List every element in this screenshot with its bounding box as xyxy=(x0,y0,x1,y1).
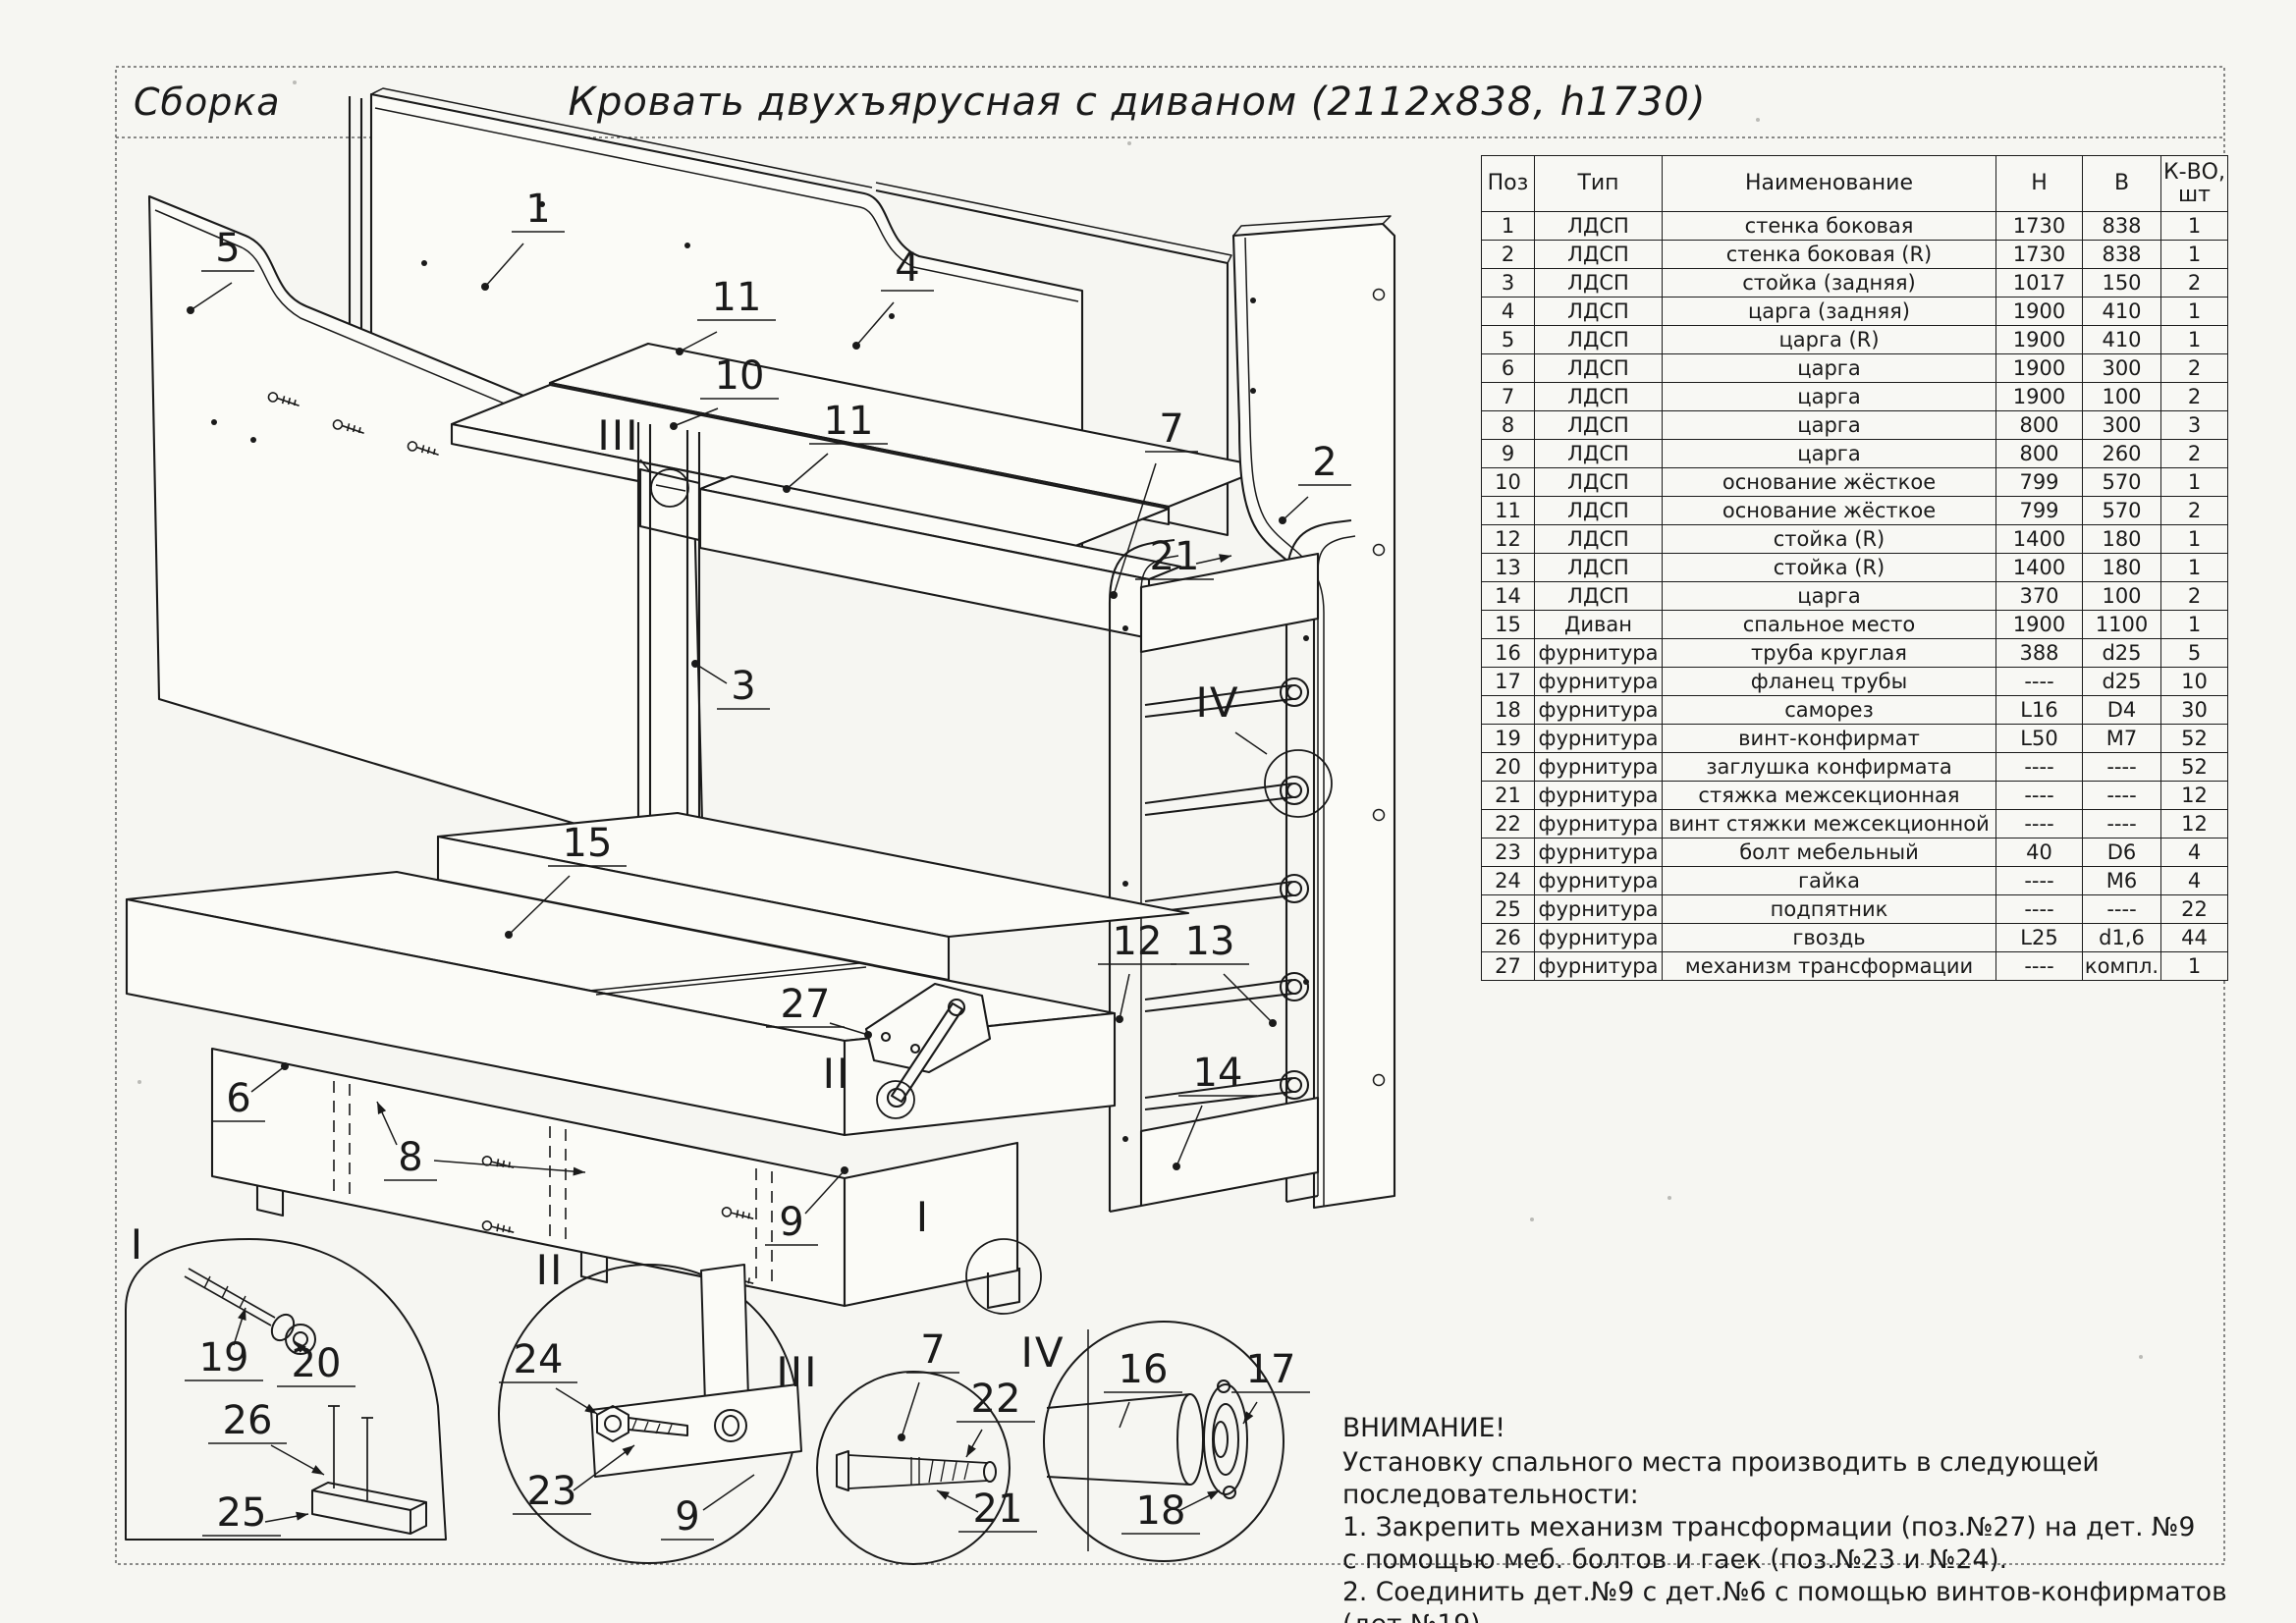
leader-dot-icon xyxy=(187,306,194,314)
parts-table-cell: 15 xyxy=(1482,611,1535,639)
leader-arrow-icon xyxy=(296,1512,308,1521)
col-pos: Поз xyxy=(1482,156,1535,212)
parts-table-cell: ЛДСП xyxy=(1535,468,1663,497)
parts-table-cell: 1 xyxy=(2161,468,2228,497)
assembly-sheet: 154111011723211512131427689IIIIVIIII1920… xyxy=(0,0,2296,1623)
warning-line: 2. Соединить дет.№9 с дет.№6 с помощью в… xyxy=(1342,1576,2266,1623)
callout-leader xyxy=(1120,974,1129,1019)
callout-label-20: 20 xyxy=(292,1341,342,1386)
parts-table-cell: 180 xyxy=(2083,525,2161,554)
parts-table-cell: ---- xyxy=(2083,753,2161,782)
parts-table-cell: 1 xyxy=(2161,212,2228,241)
callout-label-14: 14 xyxy=(1193,1051,1243,1096)
parts-table-cell: 13 xyxy=(1482,554,1535,582)
parts-table-row: 4ЛДСПцарга (задняя)19004101 xyxy=(1482,298,2228,326)
callout-label-19: 19 xyxy=(199,1335,249,1380)
parts-table: Поз Тип Наименование Н В К-ВО, шт 1ЛДСПс… xyxy=(1481,155,2228,981)
parts-table-cell: гайка xyxy=(1663,867,1996,895)
parts-table-cell: 4 xyxy=(1482,298,1535,326)
parts-table-row: 17фурнитурафланец трубы----d2510 xyxy=(1482,668,2228,696)
parts-table-cell: стойка (R) xyxy=(1663,554,1996,582)
parts-table-cell: винт-конфирмат xyxy=(1663,725,1996,753)
col-b: В xyxy=(2083,156,2161,212)
parts-table-cell: 2 xyxy=(2161,440,2228,468)
callout-label-24: 24 xyxy=(514,1337,564,1382)
parts-table-cell: 24 xyxy=(1482,867,1535,895)
parts-table-cell: болт мебельный xyxy=(1663,839,1996,867)
parts-table-cell: D6 xyxy=(2083,839,2161,867)
parts-table-cell: 26 xyxy=(1482,924,1535,952)
parts-table-row: 15Диванспальное место190011001 xyxy=(1482,611,2228,639)
parts-table-cell: 44 xyxy=(2161,924,2228,952)
parts-table-cell: ---- xyxy=(1996,867,2083,895)
parts-table-cell: ---- xyxy=(1996,952,2083,981)
parts-table-cell: 1730 xyxy=(1996,212,2083,241)
callout-label-26: 26 xyxy=(223,1398,273,1443)
parts-table-cell: фурнитура xyxy=(1535,952,1663,981)
parts-table-cell: фурнитура xyxy=(1535,867,1663,895)
callout-label-4: 4 xyxy=(895,245,919,291)
parts-table-cell: ---- xyxy=(2083,810,2161,839)
parts-table-cell: ---- xyxy=(1996,895,2083,924)
callout-label-I: I xyxy=(131,1220,144,1269)
col-type: Тип xyxy=(1535,156,1663,212)
callout-leader xyxy=(1120,1402,1129,1428)
warning-line: с помощью меб. болтов и гаек (поз.№23 и … xyxy=(1342,1543,2266,1576)
col-qty: К-ВО, шт xyxy=(2161,156,2228,212)
callout-label-7: 7 xyxy=(1159,406,1183,452)
callout-label-10: 10 xyxy=(715,353,765,399)
callout-leader xyxy=(902,1382,919,1437)
callout-label-1: 1 xyxy=(525,187,550,232)
parts-table-cell: L50 xyxy=(1996,725,2083,753)
parts-table-cell: ЛДСП xyxy=(1535,440,1663,468)
parts-table-cell: 6 xyxy=(1482,354,1535,383)
parts-table-cell: 1 xyxy=(2161,241,2228,269)
parts-table-cell: стенка боковая (R) xyxy=(1663,241,1996,269)
parts-table-cell: стяжка межсекционная xyxy=(1663,782,1996,810)
parts-table-cell: 1 xyxy=(2161,554,2228,582)
callout-label-II: II xyxy=(823,1050,851,1098)
leader-arrow-icon xyxy=(966,1444,976,1457)
parts-table-cell: 2 xyxy=(1482,241,1535,269)
parts-table-cell: фланец трубы xyxy=(1663,668,1996,696)
callout-label-23: 23 xyxy=(527,1469,577,1514)
parts-table-cell: 410 xyxy=(2083,298,2161,326)
parts-table-cell: 7 xyxy=(1482,383,1535,411)
parts-table-cell: 3 xyxy=(1482,269,1535,298)
parts-table-cell: ---- xyxy=(1996,753,2083,782)
parts-table-cell: 2 xyxy=(2161,383,2228,411)
parts-table-row: 20фурнитуразаглушка конфирмата--------52 xyxy=(1482,753,2228,782)
callout-label-22: 22 xyxy=(971,1377,1021,1422)
parts-table-cell: ---- xyxy=(2083,782,2161,810)
parts-table-cell: 14 xyxy=(1482,582,1535,611)
parts-table-cell: заглушка конфирмата xyxy=(1663,753,1996,782)
callout-label-IV: IV xyxy=(1020,1328,1065,1377)
parts-table-cell: 1 xyxy=(2161,525,2228,554)
parts-table-cell: d25 xyxy=(2083,639,2161,668)
parts-table-cell: ЛДСП xyxy=(1535,354,1663,383)
parts-table-cell: 1100 xyxy=(2083,611,2161,639)
parts-table-cell: M6 xyxy=(2083,867,2161,895)
parts-table-cell: ЛДСП xyxy=(1535,554,1663,582)
parts-table-cell: 12 xyxy=(2161,810,2228,839)
parts-table-cell: подпятник xyxy=(1663,895,1996,924)
parts-table-row: 6ЛДСПцарга19003002 xyxy=(1482,354,2228,383)
warning-line: 1. Закрепить механизм трансформации (поз… xyxy=(1342,1511,2266,1543)
parts-table-cell: царга xyxy=(1663,582,1996,611)
parts-table-cell: 1900 xyxy=(1996,298,2083,326)
parts-table-cell: 1900 xyxy=(1996,383,2083,411)
parts-table-row: 26фурнитурагвоздьL25d1,644 xyxy=(1482,924,2228,952)
parts-table-cell: 20 xyxy=(1482,753,1535,782)
parts-table-row: 16фурнитуратруба круглая388d255 xyxy=(1482,639,2228,668)
parts-table-cell: 11 xyxy=(1482,497,1535,525)
parts-table-cell: M7 xyxy=(2083,725,2161,753)
parts-table-cell: 150 xyxy=(2083,269,2161,298)
parts-table-cell: 799 xyxy=(1996,497,2083,525)
parts-table-cell: ЛДСП xyxy=(1535,525,1663,554)
callout-label-2: 2 xyxy=(1312,440,1337,485)
parts-table-row: 18фурнитурасаморезL16D430 xyxy=(1482,696,2228,725)
parts-table-row: 13ЛДСПстойка (R)14001801 xyxy=(1482,554,2228,582)
callout-label-11: 11 xyxy=(824,399,874,444)
parts-table-cell: 570 xyxy=(2083,497,2161,525)
callout-leader xyxy=(703,1475,754,1510)
parts-table-cell: 1017 xyxy=(1996,269,2083,298)
callout-label-III: III xyxy=(776,1348,818,1396)
parts-table-row: 8ЛДСПцарга8003003 xyxy=(1482,411,2228,440)
parts-table-cell: 9 xyxy=(1482,440,1535,468)
callout-label-11: 11 xyxy=(712,275,762,320)
leader-dot-icon xyxy=(1279,516,1286,524)
sofa-base-side xyxy=(845,1143,1017,1306)
leader-dot-icon xyxy=(1173,1163,1180,1170)
callout-label-7: 7 xyxy=(920,1327,945,1373)
parts-table-cell: 100 xyxy=(2083,383,2161,411)
parts-table-cell: стенка боковая xyxy=(1663,212,1996,241)
parts-table-cell: 8 xyxy=(1482,411,1535,440)
parts-table-cell: 800 xyxy=(1996,411,2083,440)
parts-table-row: 14ЛДСПцарга3701002 xyxy=(1482,582,2228,611)
parts-table-cell: 1900 xyxy=(1996,611,2083,639)
parts-table-cell: ЛДСП xyxy=(1535,383,1663,411)
parts-table-cell: 2 xyxy=(2161,582,2228,611)
parts-table-cell: саморез xyxy=(1663,696,1996,725)
leader-dot-icon xyxy=(281,1062,289,1070)
parts-table-row: 19фурнитуравинт-конфирматL50M752 xyxy=(1482,725,2228,753)
parts-table-row: 9ЛДСПцарга8002602 xyxy=(1482,440,2228,468)
callout-label-II: II xyxy=(536,1246,565,1294)
callout-label-9: 9 xyxy=(675,1494,699,1540)
parts-table-cell: стойка (R) xyxy=(1663,525,1996,554)
parts-table-cell: 30 xyxy=(2161,696,2228,725)
parts-table-cell: ЛДСП xyxy=(1535,582,1663,611)
leader-dot-icon xyxy=(898,1434,905,1441)
parts-table-cell: труба круглая xyxy=(1663,639,1996,668)
parts-table-cell: 2 xyxy=(2161,497,2228,525)
leader-arrow-icon xyxy=(1219,554,1231,563)
parts-table-cell: ЛДСП xyxy=(1535,411,1663,440)
right-side-panel xyxy=(1233,224,1394,1208)
callout-label-5: 5 xyxy=(215,226,240,271)
parts-table-cell: фурнитура xyxy=(1535,753,1663,782)
parts-table-cell: 1400 xyxy=(1996,554,2083,582)
parts-table-row: 22фурнитуравинт стяжки межсекционной----… xyxy=(1482,810,2228,839)
parts-table-row: 12ЛДСПстойка (R)14001801 xyxy=(1482,525,2228,554)
parts-table-header: Поз Тип Наименование Н В К-ВО, шт xyxy=(1482,156,2228,212)
parts-table-cell: 1 xyxy=(2161,298,2228,326)
parts-table-cell: 100 xyxy=(2083,582,2161,611)
callout-label-16: 16 xyxy=(1119,1347,1169,1392)
detail-II-content xyxy=(591,1265,801,1477)
parts-table-cell: фурнитура xyxy=(1535,696,1663,725)
drawing-title: Кровать двухъярусная с диваном (2112х838… xyxy=(548,80,1726,125)
parts-table-cell: D4 xyxy=(2083,696,2161,725)
parts-table-cell: 260 xyxy=(2083,440,2161,468)
parts-table-cell: ---- xyxy=(1996,782,2083,810)
parts-table-cell: 1730 xyxy=(1996,241,2083,269)
col-h: Н xyxy=(1996,156,2083,212)
parts-table-cell: ---- xyxy=(1996,668,2083,696)
leader-arrow-icon xyxy=(1207,1490,1220,1499)
parts-table-cell: царга (задняя) xyxy=(1663,298,1996,326)
parts-table-cell: 570 xyxy=(2083,468,2161,497)
leader-dot-icon xyxy=(676,348,683,355)
parts-table-cell: 1 xyxy=(1482,212,1535,241)
parts-table-cell: 18 xyxy=(1482,696,1535,725)
callout-label-3: 3 xyxy=(731,664,755,709)
parts-table-cell: ЛДСП xyxy=(1535,298,1663,326)
parts-table-cell: царга (R) xyxy=(1663,326,1996,354)
parts-table-cell: царга xyxy=(1663,354,1996,383)
parts-table-cell: 12 xyxy=(1482,525,1535,554)
callout-label-18: 18 xyxy=(1136,1488,1186,1534)
parts-table-row: 3ЛДСПстойка (задняя)10171502 xyxy=(1482,269,2228,298)
parts-table-cell: L25 xyxy=(1996,924,2083,952)
parts-table-cell: 1900 xyxy=(1996,354,2083,383)
parts-table-cell: 52 xyxy=(2161,725,2228,753)
parts-table-cell: Диван xyxy=(1535,611,1663,639)
parts-table-row: 23фурнитураболт мебельный40D64 xyxy=(1482,839,2228,867)
callout-label-9: 9 xyxy=(779,1200,803,1245)
callout-label-13: 13 xyxy=(1185,919,1235,964)
parts-table-cell: ---- xyxy=(1996,810,2083,839)
parts-table-cell: 300 xyxy=(2083,411,2161,440)
parts-table-cell: ЛДСП xyxy=(1535,241,1663,269)
parts-table-cell: 10 xyxy=(1482,468,1535,497)
parts-table-cell: 838 xyxy=(2083,241,2161,269)
parts-table-cell: 388 xyxy=(1996,639,2083,668)
leader-dot-icon xyxy=(1116,1015,1123,1023)
leader-dot-icon xyxy=(505,931,513,939)
parts-table-cell: 1 xyxy=(2161,326,2228,354)
parts-table-cell: ЛДСП xyxy=(1535,269,1663,298)
parts-table-cell: d25 xyxy=(2083,668,2161,696)
parts-table-row: 21фурнитурастяжка межсекционная--------1… xyxy=(1482,782,2228,810)
col-name: Наименование xyxy=(1663,156,1996,212)
parts-table-row: 11ЛДСПоснование жёсткое7995702 xyxy=(1482,497,2228,525)
parts-table-cell: фурнитура xyxy=(1535,668,1663,696)
parts-table-cell: царга xyxy=(1663,383,1996,411)
parts-table-cell: 10 xyxy=(2161,668,2228,696)
parts-table-cell: 16 xyxy=(1482,639,1535,668)
parts-table-cell: основание жёсткое xyxy=(1663,497,1996,525)
callout-label-8: 8 xyxy=(398,1135,422,1180)
leader-dot-icon xyxy=(783,485,791,493)
parts-table-cell: 300 xyxy=(2083,354,2161,383)
parts-table-cell: фурнитура xyxy=(1535,639,1663,668)
parts-table-row: 2ЛДСПстенка боковая (R)17308381 xyxy=(1482,241,2228,269)
callout-label-17: 17 xyxy=(1246,1347,1296,1392)
callout-label-III: III xyxy=(597,411,639,460)
parts-table-cell: фурнитура xyxy=(1535,725,1663,753)
detail-I-outline xyxy=(126,1239,446,1540)
title-band: Сборка Кровать двухъярусная с диваном (2… xyxy=(116,67,2224,137)
leader-dot-icon xyxy=(1269,1019,1277,1027)
parts-table-cell: 1 xyxy=(2161,952,2228,981)
parts-table-cell: 23 xyxy=(1482,839,1535,867)
parts-table-row: 24фурнитурагайка----M64 xyxy=(1482,867,2228,895)
detail-III-content xyxy=(837,1451,996,1490)
parts-table-cell: 12 xyxy=(2161,782,2228,810)
parts-table-cell: 27 xyxy=(1482,952,1535,981)
callout-label-12: 12 xyxy=(1113,919,1163,964)
callout-label-21: 21 xyxy=(1150,534,1200,579)
parts-table-cell: 25 xyxy=(1482,895,1535,924)
parts-table-cell: 799 xyxy=(1996,468,2083,497)
parts-table-cell: 40 xyxy=(1996,839,2083,867)
callout-label-25: 25 xyxy=(217,1490,267,1536)
parts-table-cell: фурнитура xyxy=(1535,895,1663,924)
ladder-rungs xyxy=(1145,678,1308,1109)
parts-table-cell: 4 xyxy=(2161,839,2228,867)
callout-label-IV: IV xyxy=(1195,678,1239,727)
callout-label-I: I xyxy=(916,1193,930,1241)
parts-table-cell: 800 xyxy=(1996,440,2083,468)
parts-table-cell: 180 xyxy=(2083,554,2161,582)
warning-note: ВНИМАНИЕ! Установку спального места прои… xyxy=(1342,1412,2266,1623)
parts-table-cell: 17 xyxy=(1482,668,1535,696)
ladder-bottom-panel xyxy=(1141,1098,1318,1206)
callout-label-6: 6 xyxy=(226,1076,250,1121)
parts-table-cell: спальное место xyxy=(1663,611,1996,639)
callout-leader xyxy=(1224,974,1273,1023)
parts-table-cell: фурнитура xyxy=(1535,924,1663,952)
parts-table-cell: 1400 xyxy=(1996,525,2083,554)
leader-arrow-icon xyxy=(311,1465,324,1475)
parts-table-cell: 410 xyxy=(2083,326,2161,354)
parts-table-cell: механизм трансформации xyxy=(1663,952,1996,981)
parts-table-row: 25фурнитураподпятник--------22 xyxy=(1482,895,2228,924)
parts-table-cell: царга xyxy=(1663,440,1996,468)
parts-table-cell: ЛДСП xyxy=(1535,497,1663,525)
parts-table-cell: ---- xyxy=(2083,895,2161,924)
warning-line: Установку спального места производить в … xyxy=(1342,1446,2266,1511)
leader-dot-icon xyxy=(841,1166,848,1174)
parts-table-cell: царга xyxy=(1663,411,1996,440)
parts-table-cell: ЛДСП xyxy=(1535,326,1663,354)
leader-dot-icon xyxy=(864,1031,872,1039)
parts-table-cell: фурнитура xyxy=(1535,839,1663,867)
leader-dot-icon xyxy=(852,342,860,350)
parts-table-cell: стойка (задняя) xyxy=(1663,269,1996,298)
parts-table-row: 1ЛДСПстенка боковая17308381 xyxy=(1482,212,2228,241)
parts-table-cell: гвоздь xyxy=(1663,924,1996,952)
callout-label-21: 21 xyxy=(973,1487,1023,1532)
parts-table-cell: основание жёсткое xyxy=(1663,468,1996,497)
parts-table-cell: 4 xyxy=(2161,867,2228,895)
leader-arrow-icon xyxy=(937,1490,950,1500)
parts-table-cell: d1,6 xyxy=(2083,924,2161,952)
leader-dot-icon xyxy=(1110,591,1118,599)
parts-table-cell: 21 xyxy=(1482,782,1535,810)
parts-table-row: 7ЛДСПцарга19001002 xyxy=(1482,383,2228,411)
parts-table-cell: 22 xyxy=(2161,895,2228,924)
parts-table-cell: винт стяжки межсекционной xyxy=(1663,810,1996,839)
parts-table-cell: 22 xyxy=(1482,810,1535,839)
parts-table-cell: 5 xyxy=(1482,326,1535,354)
leader-dot-icon xyxy=(481,283,489,291)
callout-leader xyxy=(1235,732,1267,754)
parts-table-cell: фурнитура xyxy=(1535,810,1663,839)
parts-table-row: 10ЛДСПоснование жёсткое7995701 xyxy=(1482,468,2228,497)
warning-heading: ВНИМАНИЕ! xyxy=(1342,1412,2266,1444)
parts-table-cell: ЛДСП xyxy=(1535,212,1663,241)
parts-table-cell: 2 xyxy=(2161,269,2228,298)
parts-table-cell: 1 xyxy=(2161,611,2228,639)
parts-table-cell: фурнитура xyxy=(1535,782,1663,810)
parts-table-cell: 1900 xyxy=(1996,326,2083,354)
parts-table-row: 27фурнитурамеханизм трансформации----ком… xyxy=(1482,952,2228,981)
callout-label-27: 27 xyxy=(781,982,831,1027)
parts-table-cell: 5 xyxy=(2161,639,2228,668)
section-label: Сборка xyxy=(134,81,281,124)
parts-table-cell: 3 xyxy=(2161,411,2228,440)
leader-dot-icon xyxy=(691,660,699,668)
parts-table-cell: L16 xyxy=(1996,696,2083,725)
parts-table-cell: 52 xyxy=(2161,753,2228,782)
parts-table-cell: компл. xyxy=(2083,952,2161,981)
parts-table-row: 5ЛДСПцарга (R)19004101 xyxy=(1482,326,2228,354)
leader-dot-icon xyxy=(670,422,678,430)
parts-table-cell: 370 xyxy=(1996,582,2083,611)
callout-label-15: 15 xyxy=(563,821,613,866)
parts-table-cell: 19 xyxy=(1482,725,1535,753)
parts-table-cell: 838 xyxy=(2083,212,2161,241)
parts-table-cell: 2 xyxy=(2161,354,2228,383)
